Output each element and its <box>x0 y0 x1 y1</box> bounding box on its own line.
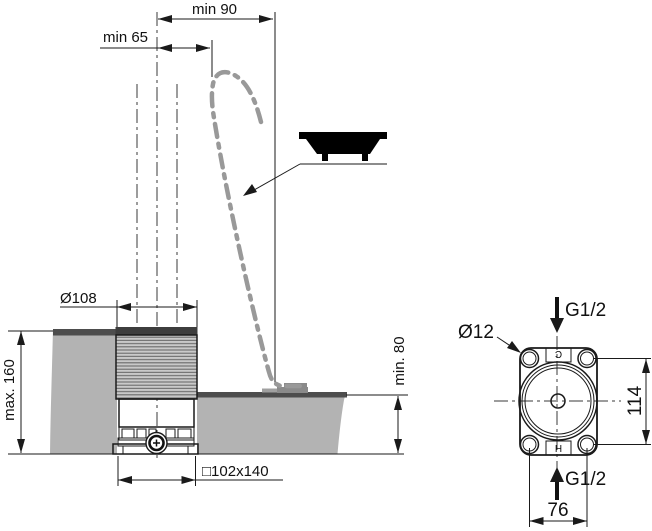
dimension-max160: max. 160 <box>1 331 53 453</box>
deck-left-section <box>50 329 117 454</box>
deck-right-section <box>197 392 346 454</box>
inlet-bottom-label: G1/2 <box>565 469 606 490</box>
dim-label-max160: max. 160 <box>1 359 18 421</box>
dim-label-dia12: Ø12 <box>458 322 494 343</box>
deck-right-top-edge <box>197 392 347 398</box>
dim-label-min65: min 65 <box>103 29 148 46</box>
dim-label-114: 114 <box>625 385 646 416</box>
port-tab-top: C <box>546 348 571 362</box>
dim-label-76: 76 <box>547 500 568 521</box>
inlet-top: G1/2 <box>550 297 606 333</box>
fitting-body <box>113 327 198 454</box>
dimension-base-size: □102x140 <box>118 456 283 486</box>
dimension-min65: min 65 <box>100 29 210 52</box>
bathtub-icon <box>299 132 387 161</box>
inlet-top-label: G1/2 <box>565 300 606 321</box>
spout-outline <box>212 72 308 393</box>
deck-left-top-edge <box>53 329 117 336</box>
port-letter-bottom: H <box>555 444 562 455</box>
spout-foot-step <box>262 389 278 393</box>
port-letter-top: C <box>555 348 562 359</box>
dim-label-base-size: □102x140 <box>202 463 269 480</box>
callout-dia12: Ø12 <box>458 322 521 353</box>
dim-label-min90: min 90 <box>192 1 237 18</box>
leader-arrow <box>243 184 257 196</box>
side-view: min 90 min 65 <box>1 1 408 486</box>
bathtub-callout <box>243 132 387 196</box>
valve-screw-knob <box>146 433 167 454</box>
dimension-min90: min 90 <box>158 1 273 23</box>
shank-cap <box>116 327 198 335</box>
port-tab-bottom: H <box>546 441 571 455</box>
threaded-shank <box>116 335 197 399</box>
dim-label-min80: min. 80 <box>391 336 408 385</box>
dimension-dia108: Ø108 <box>60 290 197 327</box>
dim-label-dia108: Ø108 <box>60 290 97 307</box>
technical-drawing: min 90 min 65 <box>0 0 652 531</box>
top-view: C H G1/2 G1/2 Ø12 <box>458 297 651 527</box>
spout-phantom-curve <box>212 72 300 386</box>
inlet-bottom: G1/2 <box>550 467 606 500</box>
dimension-min80: min. 80 <box>346 336 408 453</box>
technical-drawing-page: min 90 min 65 <box>0 0 652 531</box>
